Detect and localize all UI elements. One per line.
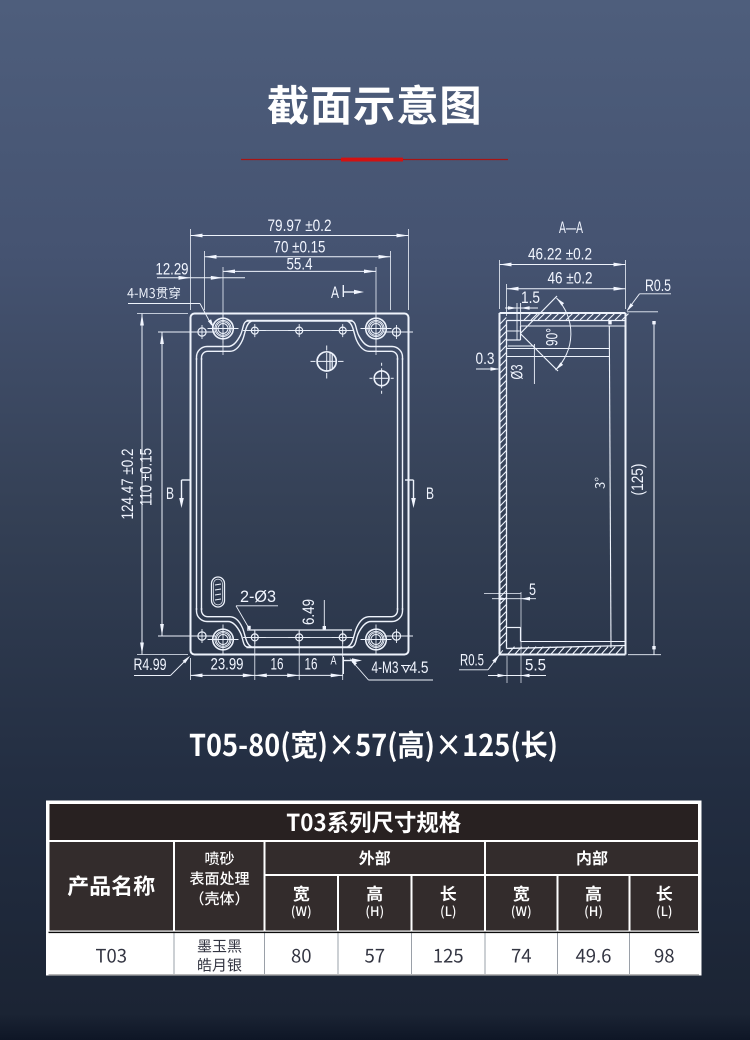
svg-text:12.29: 12.29 — [156, 260, 189, 279]
svg-text:6.49: 6.49 — [299, 599, 318, 625]
svg-text:B: B — [166, 484, 174, 503]
svg-text:R0.5: R0.5 — [460, 651, 484, 670]
svg-text:2-Ø3: 2-Ø3 — [240, 587, 276, 606]
svg-text:A: A — [331, 654, 337, 668]
svg-text:55.4: 55.4 — [287, 255, 313, 274]
svg-text:4.5: 4.5 — [410, 658, 429, 677]
svg-text:16: 16 — [271, 654, 284, 673]
svg-text:16: 16 — [305, 654, 318, 673]
svg-text:0.3: 0.3 — [476, 349, 495, 368]
svg-text:23.99: 23.99 — [211, 654, 244, 673]
svg-text:(125): (125) — [628, 464, 647, 496]
svg-text:R4.99: R4.99 — [134, 655, 167, 674]
svg-text:46 ±0.2: 46 ±0.2 — [548, 269, 593, 288]
svg-text:110 ±0.15: 110 ±0.15 — [137, 448, 156, 506]
svg-text:90°: 90° — [543, 328, 562, 346]
svg-text:124.47 ±0.2: 124.47 ±0.2 — [118, 449, 137, 520]
svg-text:R0.5: R0.5 — [645, 276, 671, 295]
svg-text:4-M3: 4-M3 — [372, 658, 399, 677]
svg-text:B: B — [426, 484, 434, 503]
svg-text:5: 5 — [529, 580, 536, 599]
svg-text:1.5: 1.5 — [521, 288, 540, 307]
svg-text:Ø3: Ø3 — [508, 365, 527, 380]
svg-text:46.22 ±0.2: 46.22 ±0.2 — [528, 245, 592, 264]
svg-text:A—A: A—A — [559, 218, 583, 237]
svg-text:5.5: 5.5 — [525, 656, 546, 675]
svg-text:A: A — [331, 283, 339, 302]
svg-text:79.97 ±0.2: 79.97 ±0.2 — [268, 216, 332, 235]
